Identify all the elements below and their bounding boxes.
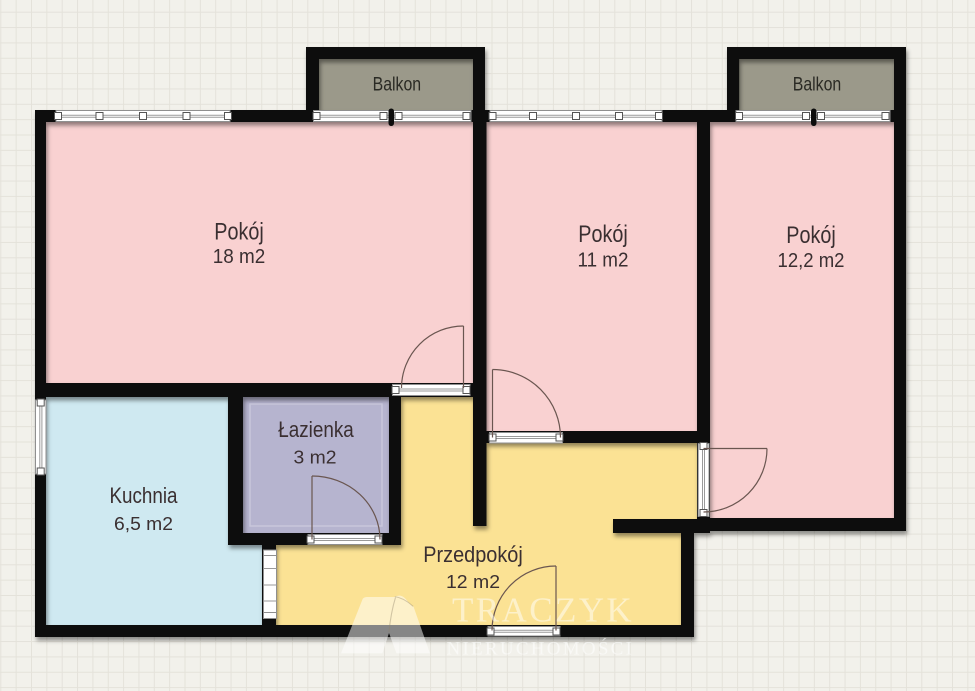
svg-text:Przedpokój: Przedpokój bbox=[423, 542, 523, 567]
svg-text:Balkon: Balkon bbox=[373, 75, 422, 96]
svg-text:6,5 m2: 6,5 m2 bbox=[114, 513, 173, 534]
svg-text:Pokój: Pokój bbox=[578, 221, 628, 248]
svg-text:NIERUCHOMOŚCI: NIERUCHOMOŚCI bbox=[447, 638, 634, 660]
svg-text:3 m2: 3 m2 bbox=[294, 447, 337, 468]
svg-text:Pokój: Pokój bbox=[786, 222, 836, 249]
svg-text:11 m2: 11 m2 bbox=[578, 250, 629, 272]
svg-text:12,2 m2: 12,2 m2 bbox=[778, 250, 845, 272]
svg-text:18 m2: 18 m2 bbox=[213, 246, 266, 268]
svg-text:12 m2: 12 m2 bbox=[446, 571, 500, 592]
svg-text:Balkon: Balkon bbox=[793, 75, 842, 96]
svg-text:Pokój: Pokój bbox=[214, 219, 264, 246]
svg-text:TRACZYK: TRACZYK bbox=[452, 591, 634, 630]
svg-text:Łazienka: Łazienka bbox=[278, 417, 354, 442]
svg-text:Kuchnia: Kuchnia bbox=[110, 483, 179, 508]
